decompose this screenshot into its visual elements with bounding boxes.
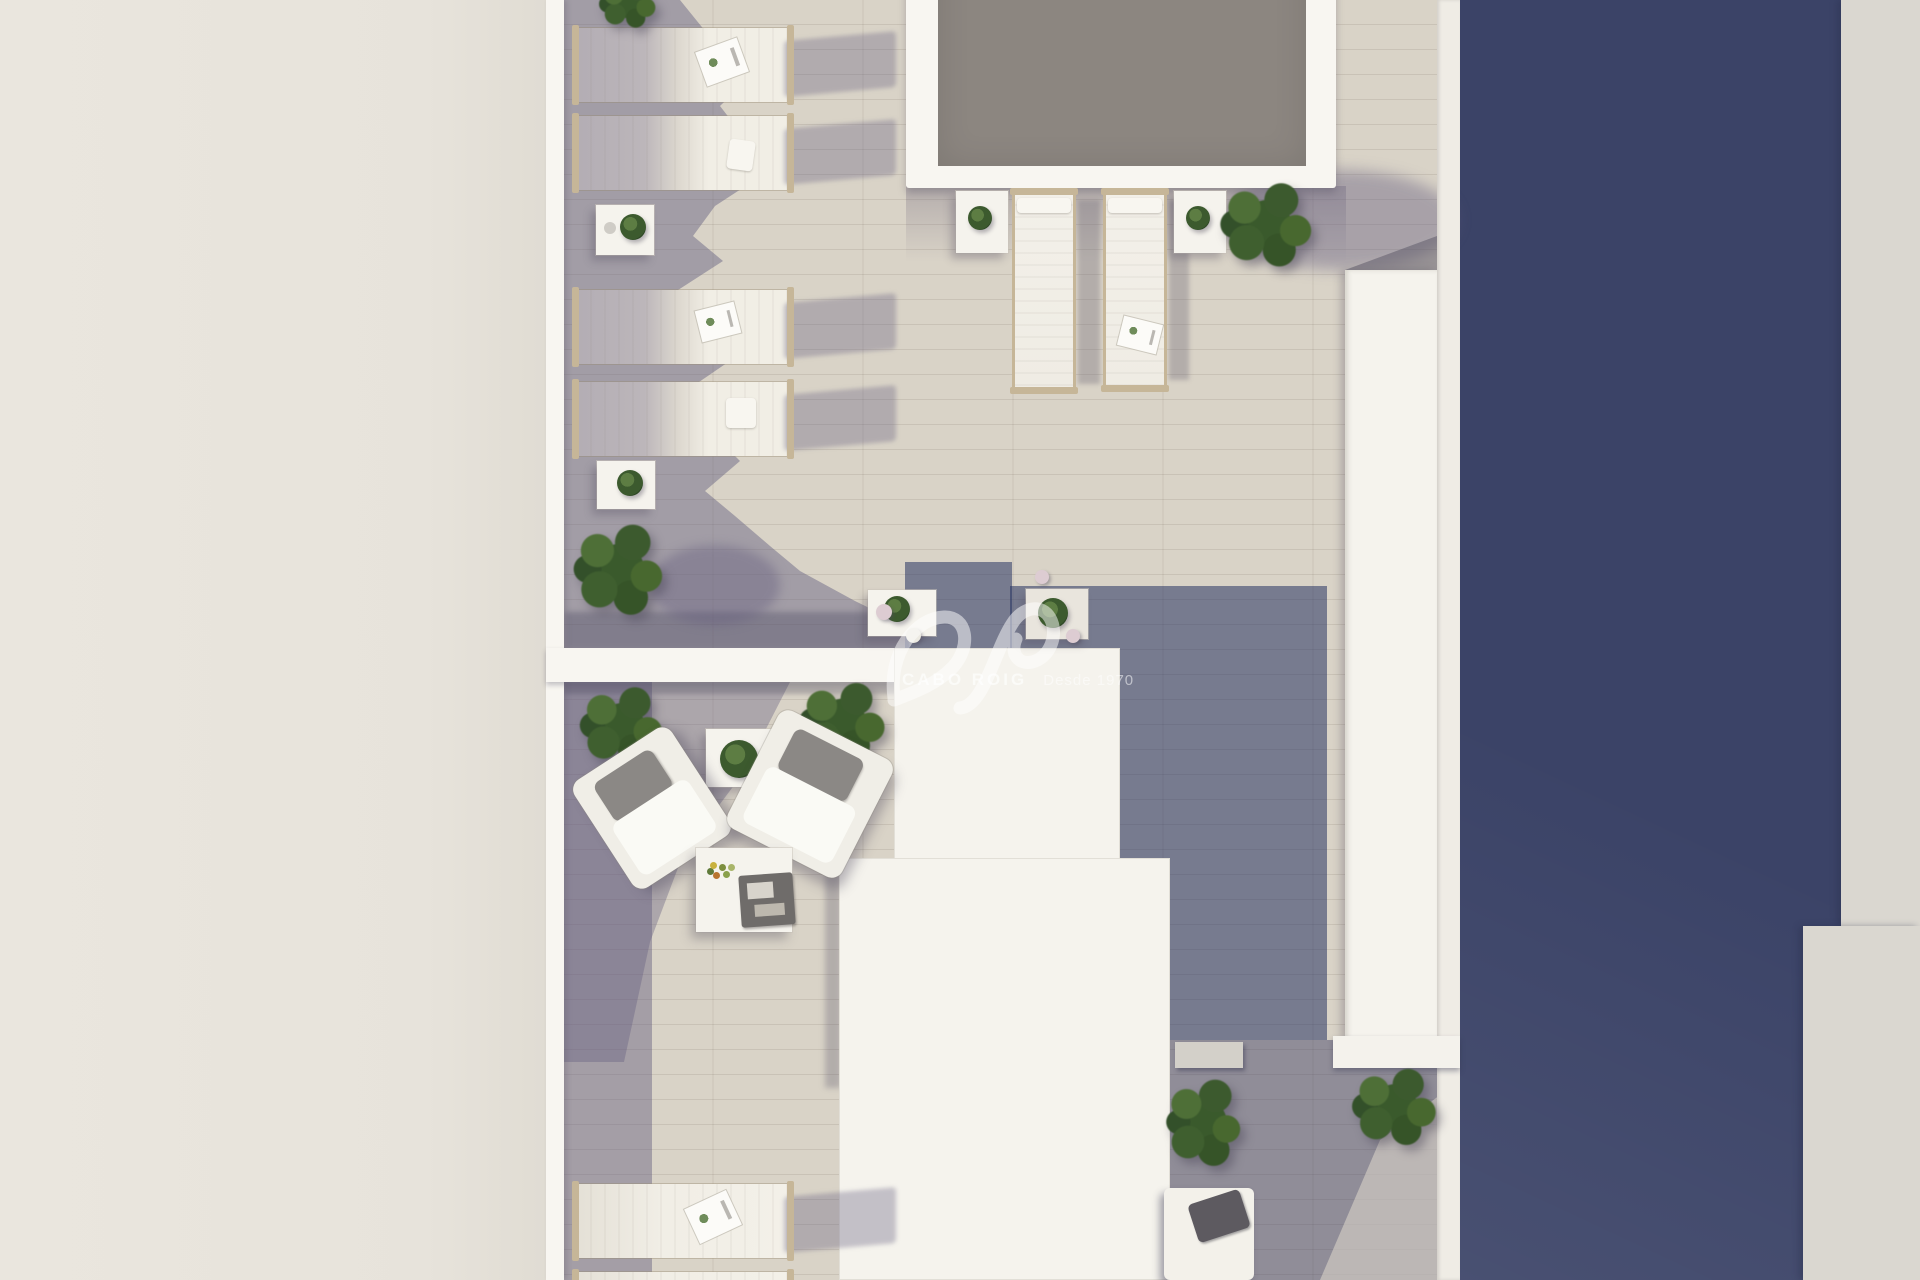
potted-plant [617,470,643,496]
coffee-table [696,848,792,932]
roof-structure-upper [894,648,1120,860]
sun-lounger [576,116,790,190]
rooftop-terrace-render: CABO ROIGDesde 1970 [0,0,1920,1280]
book [754,903,785,917]
sun-lounger [576,1184,790,1258]
plate [604,222,616,234]
sun-lounger [1012,192,1076,390]
lounger-cast-shadow [784,1187,896,1253]
lounger-cast-shadow [784,31,896,97]
right-roof-structure [1345,270,1437,1040]
right-parapet-strip [1437,0,1460,1280]
neighbor-roof [0,0,546,1280]
pillow [1108,198,1162,213]
magazine [684,1190,742,1244]
bench [1175,1042,1243,1068]
bistro-chair [906,628,921,643]
flower-decor [710,862,717,869]
bistro-chair [876,604,892,620]
potted-plant [1038,598,1068,628]
sun-lounger [576,28,790,102]
bistro-chair [1035,570,1049,584]
magazine [695,38,749,87]
potted-plant [968,206,992,230]
magazine [695,302,742,343]
swimming-pool [938,0,1306,166]
planter-ledge [1333,1036,1460,1068]
lounger-cast-shadow [784,293,896,359]
tray [738,872,795,928]
dark-pillow [1187,1189,1251,1244]
pillow [1017,198,1071,213]
lounger-cast-shadow [784,119,896,185]
potted-plant [1186,206,1210,230]
magazine [1117,316,1163,355]
sun-lounger [576,382,790,456]
pillow [726,398,756,428]
daybed [1164,1188,1254,1280]
pillow [726,138,756,171]
left-parapet-wall [546,0,564,1280]
bistro-chair [1066,629,1080,643]
right-light-wall-upper [1841,0,1920,926]
potted-plant [620,214,646,240]
right-light-wall-lower [1803,926,1920,1280]
terrace-divider-wall [546,648,906,682]
lounger-cast-shadow [784,385,896,451]
sun-lounger [1103,192,1167,388]
book [747,882,774,900]
sun-lounger [576,290,790,364]
sun-lounger-partial [576,1272,790,1280]
